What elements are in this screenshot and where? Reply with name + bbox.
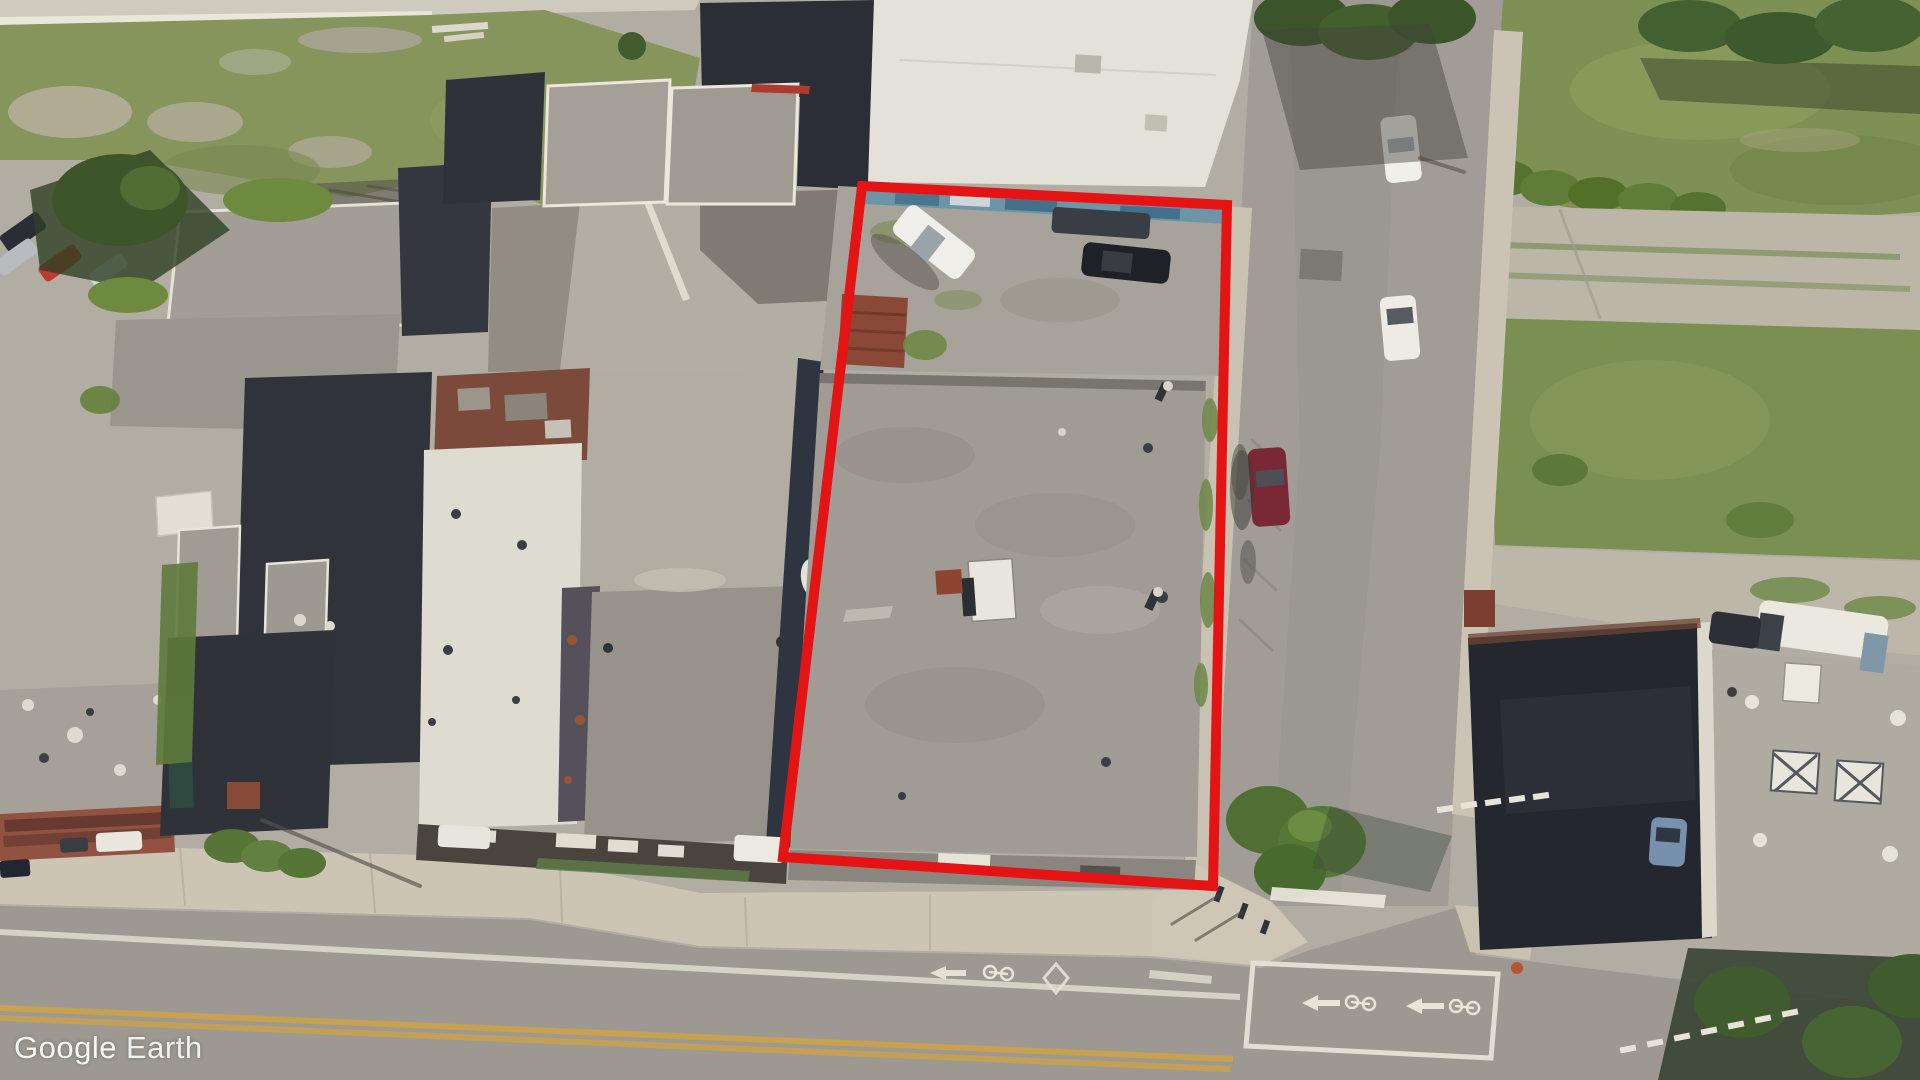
court-roof-b — [667, 84, 798, 204]
rooftop-unit — [1075, 54, 1102, 73]
roof-mottle-light — [1040, 586, 1160, 634]
roof-vent-dark — [1727, 687, 1737, 697]
hvac-box — [1783, 663, 1822, 703]
shadow-sidewalk-east — [1231, 444, 1249, 500]
roof-vent-dark — [898, 792, 906, 800]
brick-chimney — [227, 782, 260, 809]
vent-pipe-cap — [1163, 381, 1173, 391]
court-roof-a — [544, 80, 670, 206]
car-white-street-mid-glass — [1386, 307, 1413, 325]
roof-blotch — [634, 568, 726, 592]
east-edge-weeds — [1202, 398, 1218, 442]
dirt-weeds — [1750, 577, 1830, 603]
gray-roof-building-east — [584, 586, 800, 844]
car-dark-main-street — [60, 837, 89, 852]
lot-weeds — [934, 290, 982, 310]
roof-vent-white — [67, 727, 83, 743]
field-bush — [1726, 502, 1794, 538]
car-white-curb — [437, 825, 490, 850]
brick-corner-block — [1464, 590, 1495, 627]
storefront-awning-white — [658, 844, 685, 857]
lot-stain — [1000, 278, 1120, 322]
subject-property — [790, 186, 1230, 857]
shrub-row — [1568, 177, 1628, 211]
roof-vent-white — [1882, 846, 1898, 862]
earth-viewport[interactable]: GoogleEarth — [0, 0, 1920, 1080]
east-edge-weeds — [1194, 663, 1208, 707]
car-maroon-glass — [1255, 469, 1284, 487]
roof-vent-dark — [451, 509, 461, 519]
awning-dark-segment — [895, 193, 940, 206]
shadow-sidewalk-east — [1240, 540, 1256, 584]
hatch-opening — [961, 578, 977, 617]
rust-speck — [564, 776, 572, 784]
roof-vent-dark — [1143, 443, 1153, 453]
hedge-vertical — [156, 562, 198, 765]
equipment-unit — [457, 387, 490, 411]
field-bush — [1532, 454, 1588, 486]
fire-hydrant — [1511, 962, 1523, 974]
dirt-patch — [219, 49, 291, 75]
roof-vent-dark — [517, 540, 527, 550]
tree-nw-highlight — [120, 166, 180, 210]
storefront-awning-white — [608, 839, 639, 853]
roof-vent-dark — [428, 718, 436, 726]
storefront-awning-white — [556, 833, 597, 849]
roof-vent-red — [935, 569, 963, 595]
roof-vent-white — [294, 614, 306, 626]
tree-se — [1802, 1006, 1902, 1078]
rubble-pile — [298, 27, 422, 53]
equipment-unit — [545, 419, 572, 438]
satellite-svg — [0, 0, 1920, 1080]
watermark-brand: Google — [14, 1030, 117, 1065]
roof-mottle — [835, 427, 975, 483]
black-roof-sheen — [1500, 686, 1696, 814]
van-white-main-street — [96, 831, 143, 852]
roof-mottle — [975, 493, 1135, 557]
hedge-bright — [88, 277, 168, 313]
rust-speck — [567, 635, 577, 645]
google-earth-watermark: GoogleEarth — [14, 1030, 203, 1066]
roof-vent-white — [1890, 710, 1906, 726]
hedge-bright — [223, 178, 333, 222]
rust-speck — [575, 715, 585, 725]
roof-vent-white — [1745, 695, 1759, 709]
dark-roof-wedge — [443, 72, 545, 204]
treeline-northeast — [1638, 0, 1742, 52]
watermark-product: Earth — [126, 1030, 203, 1065]
roof-vent-white — [1753, 833, 1767, 847]
white-commercial-building — [868, 0, 1253, 187]
roof-vent-dark — [603, 643, 613, 653]
hedge-bright — [80, 386, 120, 414]
roof-vent-dark — [86, 708, 94, 716]
concrete-pad-east — [1482, 206, 1920, 330]
roof-vent-dark — [443, 645, 453, 655]
roof-mottle — [865, 667, 1045, 743]
east-edge-weeds — [1199, 479, 1213, 531]
roof-vent-white — [22, 699, 34, 711]
white-mill-building — [419, 443, 582, 829]
car-blue-se-glass — [1656, 827, 1681, 843]
lot-weed-clump — [903, 330, 947, 360]
truck-white-storefront — [733, 835, 784, 864]
roof-vent-dark — [39, 753, 49, 763]
equipment-unit — [504, 393, 547, 421]
car-dark-parked-low — [0, 859, 31, 878]
dirt-patch — [147, 102, 243, 142]
vent-pipe-cap — [1153, 587, 1163, 597]
roof-dot-white — [1058, 428, 1066, 436]
roof-vent-dark — [1101, 757, 1111, 767]
roof-vent-white — [325, 621, 335, 631]
car-black-lot-glint — [1101, 250, 1133, 273]
sapling — [618, 32, 646, 60]
roof-vent-white — [114, 764, 126, 776]
road-patch — [1299, 249, 1343, 281]
roof-vent-dark — [512, 696, 520, 704]
dirt-patch — [8, 86, 132, 138]
car-white-street-mid — [1379, 295, 1420, 362]
field-path — [1740, 128, 1860, 152]
rooftop-unit — [1145, 114, 1168, 131]
tree-se — [1694, 966, 1790, 1038]
shrub-storefront — [278, 848, 326, 878]
